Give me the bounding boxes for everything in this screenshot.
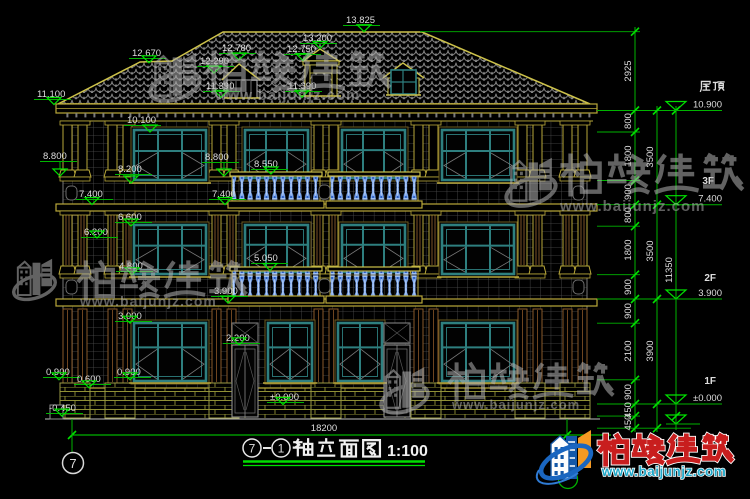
svg-text:3500: 3500	[645, 240, 656, 261]
svg-text:18200: 18200	[311, 423, 337, 434]
svg-text:11350: 11350	[664, 257, 675, 283]
svg-text:11.100: 11.100	[37, 89, 65, 100]
svg-text:1F: 1F	[704, 376, 716, 387]
svg-text:12.670: 12.670	[132, 48, 161, 59]
svg-text:7.400: 7.400	[212, 189, 236, 200]
svg-text:1:100: 1:100	[387, 443, 428, 460]
svg-text:800: 800	[623, 113, 634, 129]
svg-text:±0.000: ±0.000	[693, 393, 722, 404]
svg-text:900: 900	[623, 279, 634, 295]
svg-text:www.baijunjz.com: www.baijunjz.com	[601, 464, 727, 479]
svg-text:450: 450	[623, 415, 634, 431]
svg-text:900: 900	[623, 303, 634, 319]
svg-text:www.baijunjz.com: www.baijunjz.com	[214, 87, 360, 104]
svg-text:1: 1	[278, 442, 285, 456]
svg-text:1800: 1800	[623, 239, 634, 260]
svg-text:7.400: 7.400	[79, 189, 103, 200]
svg-text:900: 900	[623, 384, 634, 400]
svg-text:2925: 2925	[623, 60, 634, 81]
svg-text:2.200: 2.200	[226, 333, 250, 344]
svg-text:10.100: 10.100	[127, 115, 156, 126]
svg-text:6.600: 6.600	[118, 212, 142, 223]
svg-text:www.baijunjz.com: www.baijunjz.com	[79, 293, 217, 309]
svg-text:13.200: 13.200	[303, 33, 332, 44]
svg-text:www.baijunjz.com: www.baijunjz.com	[451, 397, 580, 412]
svg-text:3.900: 3.900	[698, 288, 722, 299]
svg-text:7: 7	[249, 442, 256, 456]
svg-text:5.050: 5.050	[254, 253, 278, 264]
svg-text:3900: 3900	[645, 340, 656, 361]
svg-text:12.780: 12.780	[222, 43, 251, 54]
svg-text:8.200: 8.200	[118, 164, 142, 175]
svg-text:10.900: 10.900	[693, 100, 722, 111]
svg-text:8.800: 8.800	[43, 151, 67, 162]
svg-text:2F: 2F	[704, 273, 716, 284]
svg-text:www.baijunjz.com: www.baijunjz.com	[559, 198, 705, 215]
svg-text:0.600: 0.600	[77, 374, 101, 385]
svg-text:2100: 2100	[623, 340, 634, 361]
svg-text:7: 7	[69, 456, 76, 471]
svg-text:8.800: 8.800	[205, 152, 229, 163]
